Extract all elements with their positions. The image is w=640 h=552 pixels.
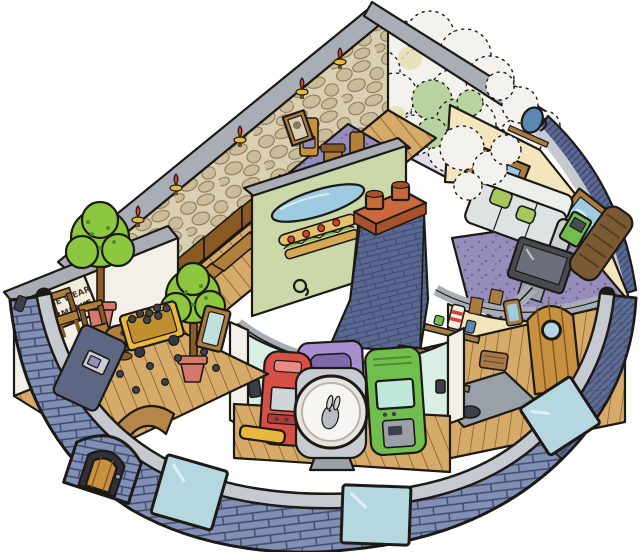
illustration-canvas: PLEASE WEAR A YARMULKE [0,0,640,552]
building-cutaway-illustration: PLEASE WEAR A YARMULKE [0,0,640,552]
chimney-pot [366,191,383,210]
green-cup [434,315,445,326]
chimney-pot [392,182,409,201]
arcade-right-divider [448,328,464,424]
door-porthole [542,320,562,340]
basket [479,350,508,371]
porthole-machine [295,368,367,470]
green-arcade-cabinet [364,346,426,456]
arcade-room [230,322,464,472]
small-mirror [503,299,523,326]
front-window [341,485,411,545]
